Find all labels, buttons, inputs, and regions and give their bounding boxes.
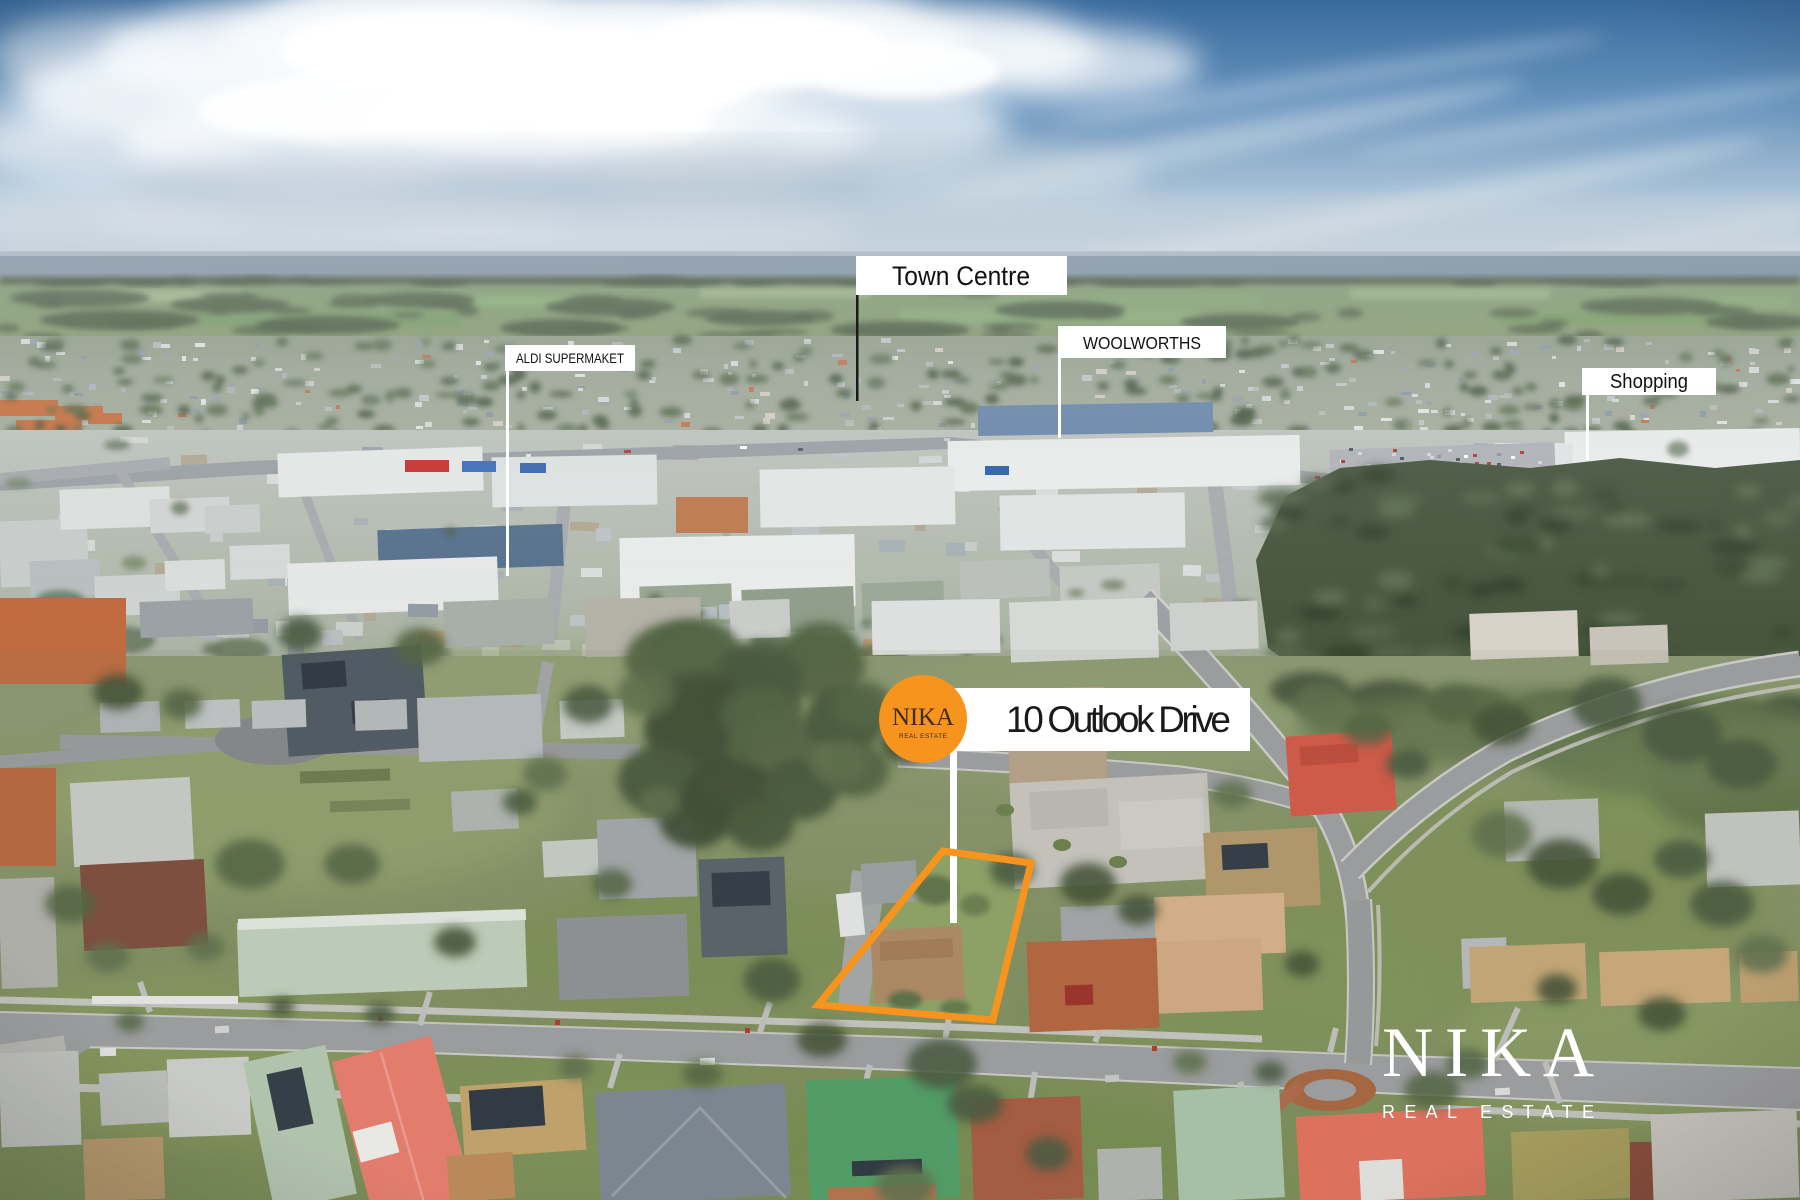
svg-text:WOOLWORTHS: WOOLWORTHS	[1083, 333, 1201, 353]
svg-text:NIKA: NIKA	[1382, 1014, 1594, 1092]
svg-text:Shopping: Shopping	[1610, 371, 1688, 393]
svg-text:REAL ESTATE: REAL ESTATE	[1382, 1102, 1594, 1122]
svg-text:NIKA: NIKA	[892, 704, 954, 731]
svg-text:Town Centre: Town Centre	[892, 261, 1030, 291]
svg-text:ALDI SUPERMAKET: ALDI SUPERMAKET	[516, 350, 624, 366]
svg-text:REAL ESTATE: REAL ESTATE	[899, 733, 948, 740]
svg-text:10 Outlook Drive: 10 Outlook Drive	[1006, 699, 1231, 740]
